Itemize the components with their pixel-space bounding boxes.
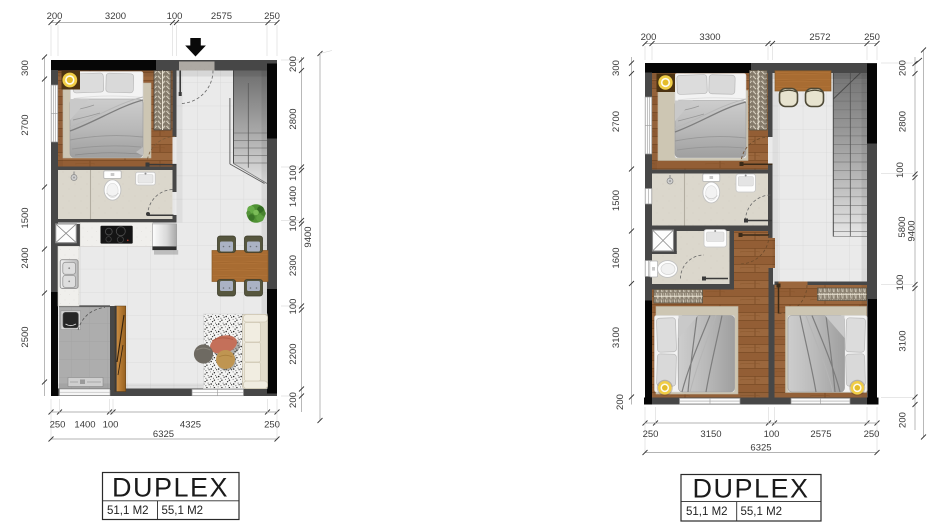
- svg-text:250: 250: [264, 11, 280, 22]
- svg-text:200: 200: [615, 394, 626, 410]
- svg-text:4325: 4325: [180, 420, 201, 431]
- svg-text:2575: 2575: [211, 11, 232, 22]
- svg-text:DUPLEX: DUPLEX: [692, 474, 809, 504]
- svg-text:200: 200: [898, 412, 909, 428]
- svg-text:100: 100: [764, 429, 780, 440]
- svg-text:200: 200: [641, 32, 657, 43]
- svg-text:3100: 3100: [611, 327, 622, 348]
- svg-text:9400: 9400: [907, 220, 918, 241]
- svg-text:3200: 3200: [105, 11, 126, 22]
- svg-text:250: 250: [864, 32, 880, 43]
- svg-text:3100: 3100: [898, 330, 909, 351]
- svg-text:250: 250: [50, 420, 66, 431]
- svg-text:100: 100: [895, 275, 906, 291]
- svg-text:2300: 2300: [288, 255, 299, 276]
- svg-text:2572: 2572: [809, 32, 830, 43]
- svg-text:100: 100: [288, 216, 299, 232]
- svg-text:55,1 M2: 55,1 M2: [162, 505, 204, 517]
- svg-text:2800: 2800: [288, 108, 299, 129]
- svg-text:6325: 6325: [153, 429, 174, 440]
- svg-text:100: 100: [103, 420, 119, 431]
- svg-text:51,1 M2: 51,1 M2: [107, 505, 149, 517]
- svg-text:1600: 1600: [611, 247, 622, 268]
- svg-text:3300: 3300: [699, 32, 720, 43]
- svg-text:2575: 2575: [810, 429, 831, 440]
- svg-text:250: 250: [864, 429, 880, 440]
- svg-text:1500: 1500: [611, 190, 622, 211]
- svg-text:51,1 M2: 51,1 M2: [686, 506, 728, 518]
- svg-text:300: 300: [611, 60, 622, 76]
- svg-text:200: 200: [288, 56, 299, 72]
- svg-text:3150: 3150: [700, 429, 721, 440]
- svg-text:1400: 1400: [74, 420, 95, 431]
- svg-text:100: 100: [288, 299, 299, 315]
- svg-text:55,1 M2: 55,1 M2: [741, 506, 783, 518]
- svg-text:2400: 2400: [20, 247, 31, 268]
- svg-text:2700: 2700: [611, 111, 622, 132]
- svg-text:1400: 1400: [288, 186, 299, 207]
- svg-text:2700: 2700: [20, 114, 31, 135]
- svg-text:100: 100: [895, 162, 906, 178]
- svg-text:9400: 9400: [303, 226, 314, 247]
- svg-text:100: 100: [167, 11, 183, 22]
- svg-text:2200: 2200: [288, 343, 299, 364]
- svg-text:200: 200: [47, 11, 63, 22]
- svg-text:6325: 6325: [750, 443, 771, 454]
- svg-text:250: 250: [264, 420, 280, 431]
- svg-text:300: 300: [20, 60, 31, 76]
- svg-text:DUPLEX: DUPLEX: [112, 473, 229, 503]
- svg-text:2500: 2500: [20, 326, 31, 347]
- svg-text:100: 100: [288, 165, 299, 181]
- svg-text:200: 200: [288, 392, 299, 408]
- svg-text:250: 250: [643, 429, 659, 440]
- svg-text:1500: 1500: [20, 207, 31, 228]
- svg-text:2800: 2800: [898, 111, 909, 132]
- svg-text:200: 200: [898, 60, 909, 76]
